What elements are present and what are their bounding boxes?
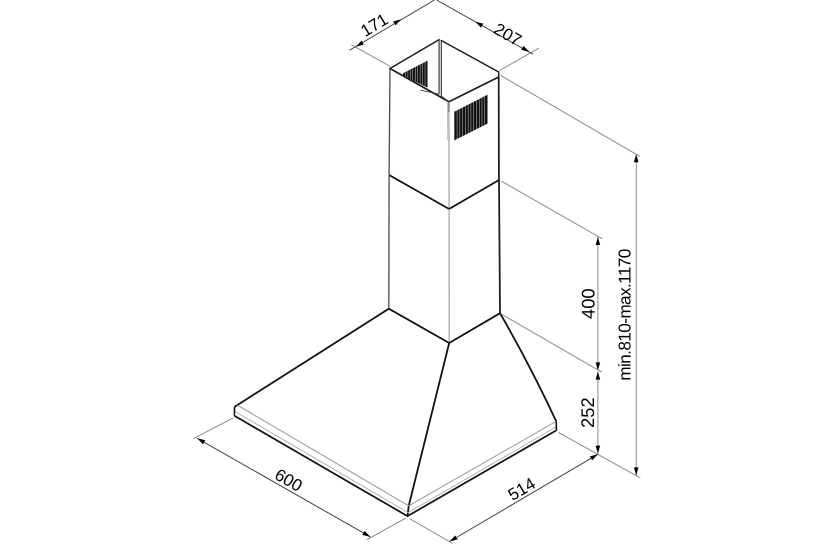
svg-text:400: 400 bbox=[577, 288, 598, 319]
svg-text:252: 252 bbox=[577, 397, 598, 428]
svg-text:min.810-max.1170: min.810-max.1170 bbox=[615, 249, 635, 381]
